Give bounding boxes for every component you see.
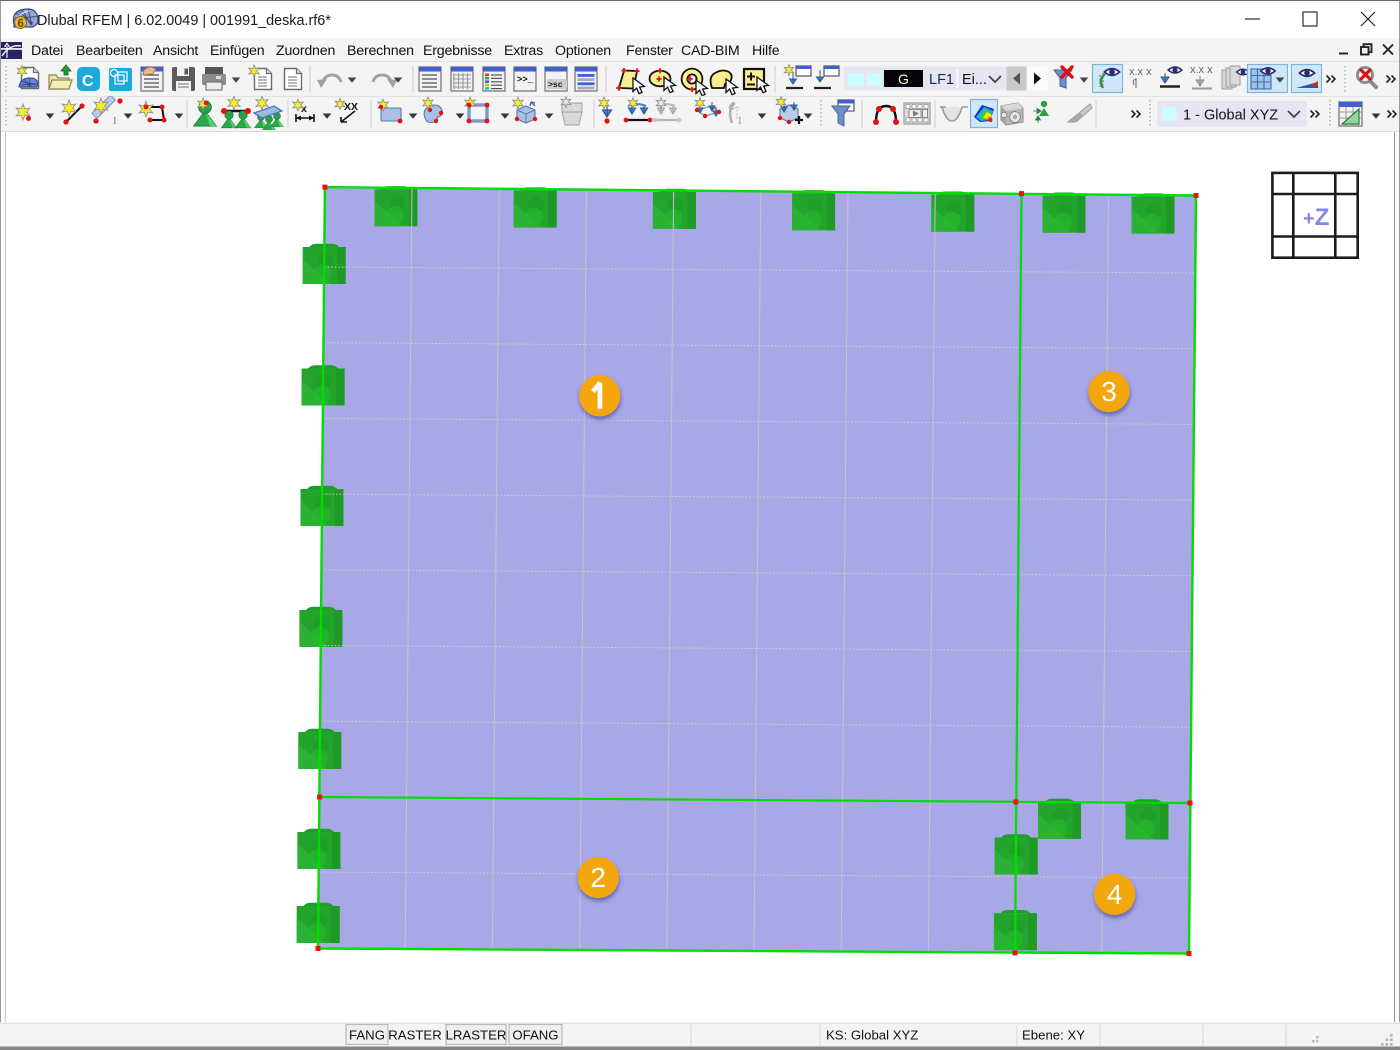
svg-text:Einfügen: Einfügen: [210, 43, 264, 59]
svg-text:Optionen: Optionen: [555, 43, 611, 59]
svg-text:x.x x: x.x x: [1190, 64, 1213, 76]
svg-text:6: 6: [18, 18, 24, 30]
svg-text:G: G: [898, 71, 909, 87]
svg-text:4: 4: [1107, 879, 1123, 910]
svg-text:I: I: [738, 115, 742, 127]
svg-text:>>_: >>_: [517, 75, 534, 85]
svg-text:Ebene: XY: Ebene: XY: [1022, 1028, 1085, 1043]
svg-text:RASTER: RASTER: [388, 1028, 442, 1043]
svg-text:I: I: [113, 115, 117, 127]
svg-text:Berechnen: Berechnen: [347, 43, 414, 59]
svg-text:C: C: [82, 73, 94, 90]
svg-text:Zuordnen: Zuordnen: [276, 43, 335, 59]
svg-text:Datei: Datei: [31, 43, 63, 59]
svg-text:x: x: [301, 103, 307, 115]
svg-text:LF1: LF1: [929, 72, 954, 88]
svg-text:Ei...: Ei...: [962, 72, 987, 88]
svg-text:1 - Global XYZ: 1 - Global XYZ: [1183, 108, 1278, 124]
svg-text:Bearbeiten: Bearbeiten: [76, 43, 143, 59]
svg-text:Fenster: Fenster: [626, 43, 673, 59]
svg-text:Ergebnisse: Ergebnisse: [423, 43, 492, 59]
svg-text:XX: XX: [344, 101, 358, 113]
svg-text:x.x x: x.x x: [1129, 66, 1152, 78]
svg-text:CAD-BIM: CAD-BIM: [681, 43, 740, 59]
svg-text:OFANG: OFANG: [512, 1028, 558, 1043]
svg-text:Dlubal RFEM | 6.02.0049 | 0019: Dlubal RFEM | 6.02.0049 | 001991_deska.r…: [37, 13, 331, 29]
svg-text:2: 2: [590, 862, 606, 893]
svg-text:3: 3: [1101, 376, 1117, 407]
svg-text:KS: Global XYZ: KS: Global XYZ: [826, 1028, 918, 1043]
svg-text:>sc: >sc: [548, 79, 563, 89]
svg-text:Extras: Extras: [504, 43, 543, 59]
svg-text:Hilfe: Hilfe: [752, 43, 780, 59]
svg-text:LRASTER: LRASTER: [446, 1028, 507, 1043]
svg-text:+Z: +Z: [1303, 204, 1329, 231]
svg-text:FANG: FANG: [349, 1028, 385, 1043]
svg-text:Ansicht: Ansicht: [153, 43, 198, 59]
